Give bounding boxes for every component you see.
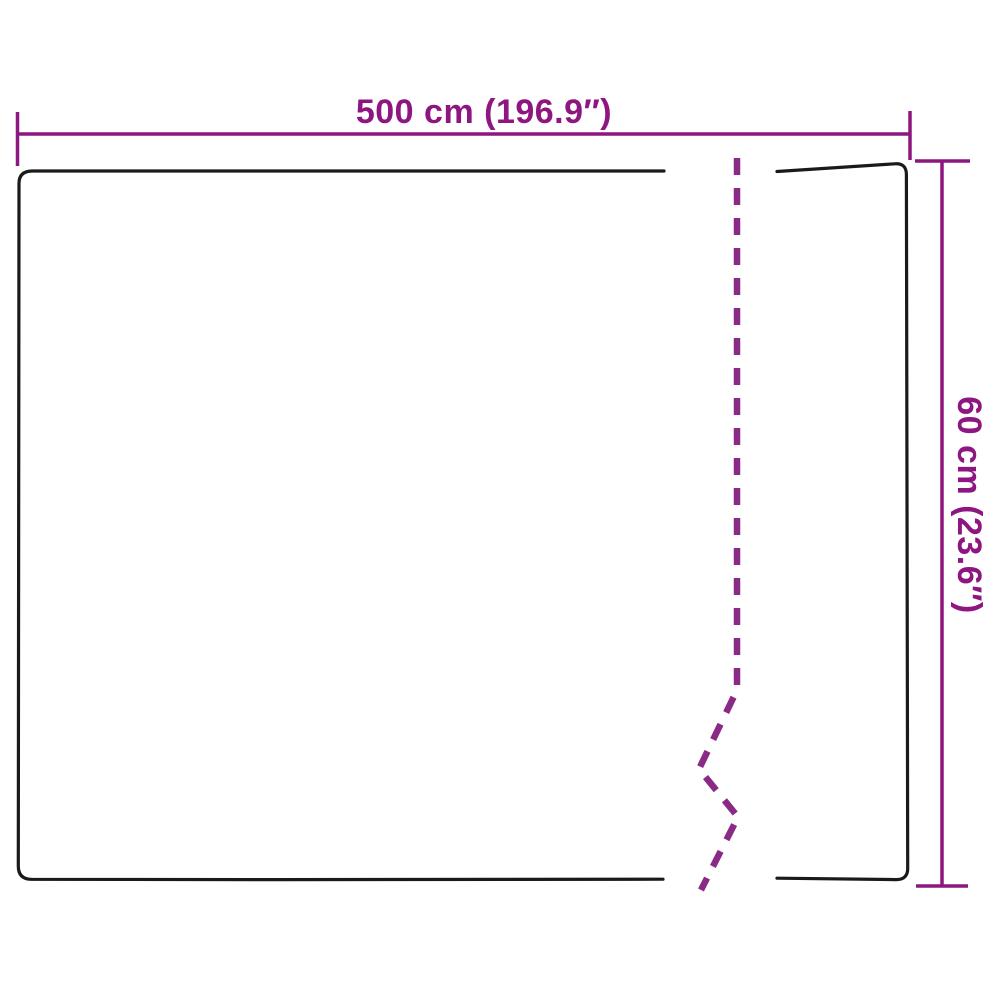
height-dimension-label: 60 cm (23.6″) xyxy=(950,396,988,613)
product-dimension-diagram: 500 cm (196.9″) 60 cm (23.6″) xyxy=(0,0,1000,1000)
diagram-background xyxy=(0,0,1000,1000)
width-dimension-label: 500 cm (196.9″) xyxy=(356,93,612,131)
diagram-svg: 500 cm (196.9″) 60 cm (23.6″) xyxy=(0,0,1000,1000)
